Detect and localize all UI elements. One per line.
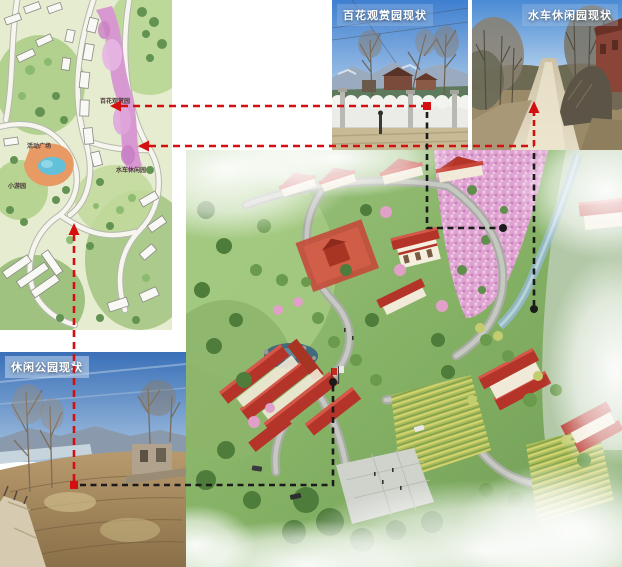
photo-xiuxian-graphic bbox=[0, 352, 186, 567]
map-label-baihua-garden: 百花观赏园 bbox=[100, 97, 130, 105]
photo-shuiche-label: 水车休闲园现状 bbox=[522, 4, 618, 26]
photo-baihua-label: 百花观赏园现状 bbox=[337, 4, 433, 26]
master-plan-map: 百花观赏园 水车休闲园 活动广场 小游园 bbox=[0, 0, 172, 330]
photo-xiuxian-current: 休闲公园现状 bbox=[0, 352, 186, 567]
map-label-small-garden: 小游园 bbox=[7, 182, 26, 190]
photo-shuiche-current: 水车休闲园现状 bbox=[472, 0, 622, 152]
map-label-activity-plaza: 活动广场 bbox=[27, 142, 51, 150]
master-plan-graphic: 百花观赏园 水车休闲园 活动广场 小游园 bbox=[0, 0, 172, 330]
render-aerial-view bbox=[186, 150, 622, 567]
render-graphic bbox=[186, 150, 622, 567]
photo-xiuxian-label: 休闲公园现状 bbox=[5, 356, 89, 378]
presentation-board: 百花观赏园 水车休闲园 活动广场 小游园 百花观赏园现状 bbox=[0, 0, 622, 567]
map-label-shuiche-garden: 水车休闲园 bbox=[116, 166, 146, 174]
photo-baihua-current: 百花观赏园现状 bbox=[332, 0, 468, 152]
